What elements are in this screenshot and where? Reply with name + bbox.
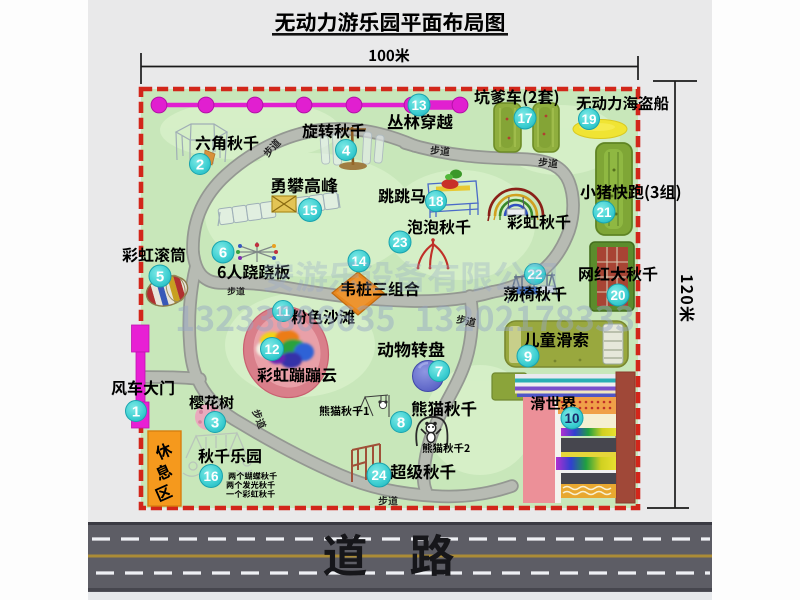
svg-text:8: 8: [397, 414, 405, 431]
svg-text:10: 10: [564, 411, 579, 426]
svg-text:24: 24: [371, 468, 387, 483]
svg-text:14: 14: [351, 254, 367, 269]
svg-text:4: 4: [342, 142, 351, 159]
svg-text:15: 15: [302, 203, 318, 218]
svg-text:16: 16: [203, 469, 219, 484]
svg-text:9: 9: [524, 348, 532, 365]
svg-text:21: 21: [596, 205, 612, 220]
svg-text:7: 7: [435, 363, 443, 380]
svg-text:2: 2: [196, 156, 204, 173]
svg-text:19: 19: [581, 112, 596, 127]
svg-text:1: 1: [132, 403, 140, 420]
svg-text:5: 5: [156, 268, 164, 285]
svg-text:6: 6: [219, 244, 227, 261]
svg-text:13: 13: [411, 98, 427, 113]
svg-text:12: 12: [264, 342, 279, 357]
svg-text:18: 18: [428, 194, 444, 209]
svg-text:3: 3: [211, 414, 219, 431]
svg-text:23: 23: [392, 235, 408, 250]
svg-text:17: 17: [517, 111, 532, 126]
svg-text:20: 20: [610, 288, 625, 303]
